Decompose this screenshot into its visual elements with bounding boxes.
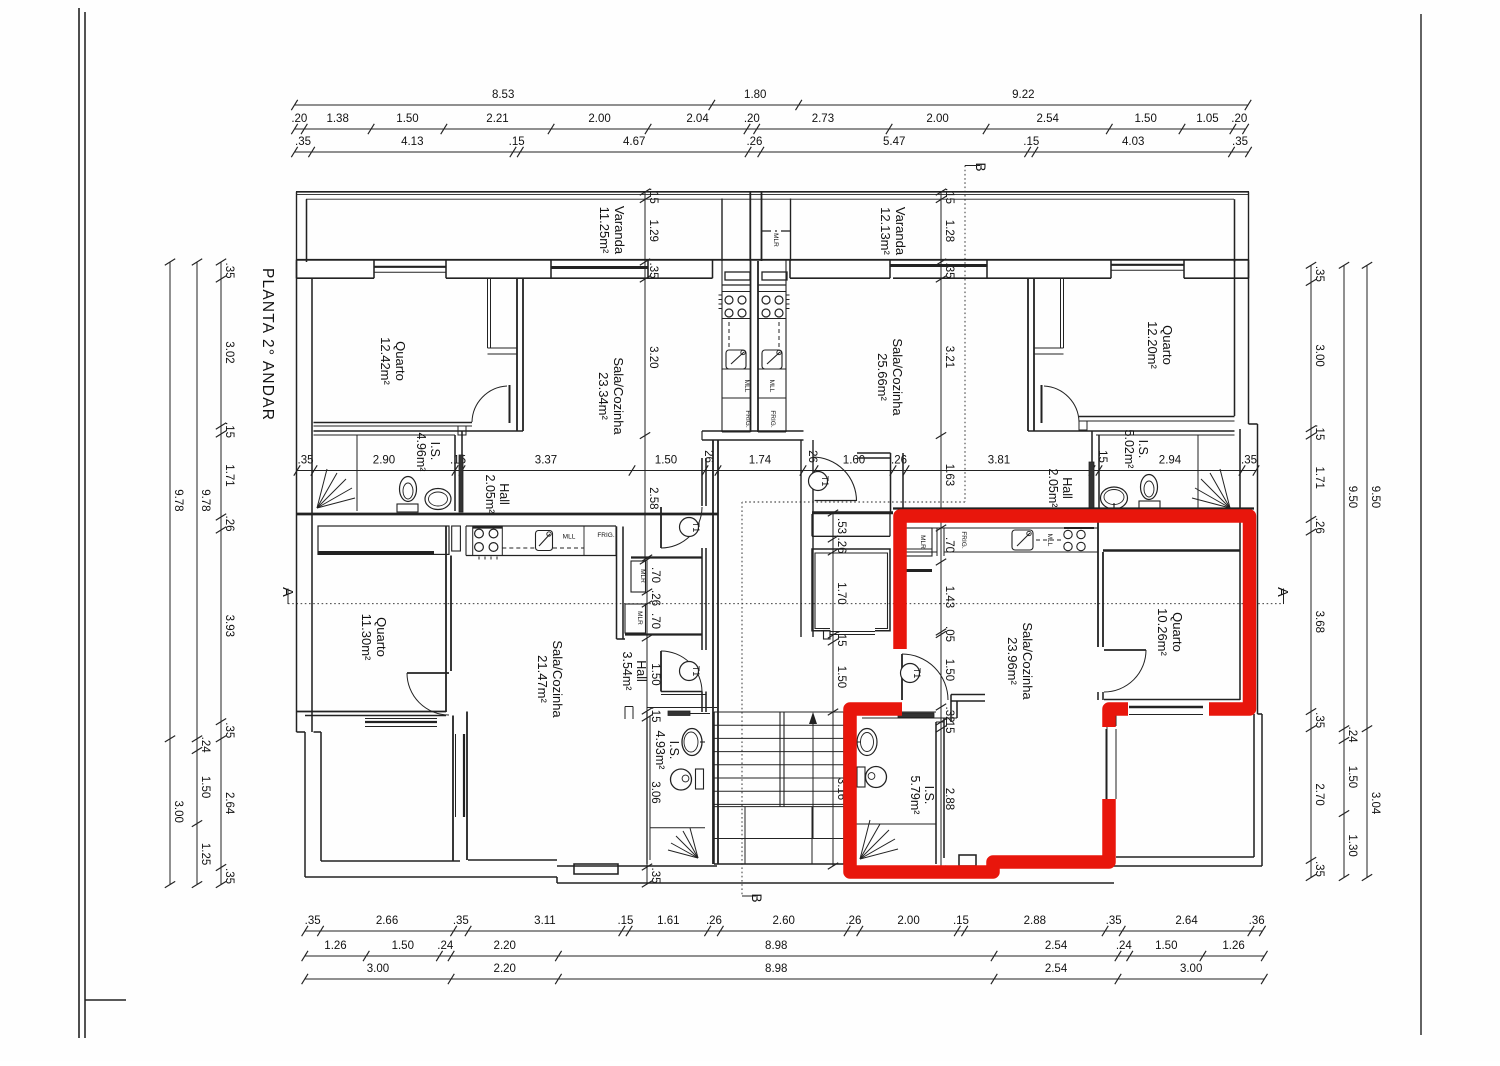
svg-text:.26: .26: [746, 136, 762, 148]
svg-text:1.26: 1.26: [1222, 940, 1244, 952]
svg-text:5.79m²: 5.79m²: [908, 776, 922, 815]
svg-text:.35: .35: [1313, 266, 1325, 282]
svg-text:3.04: 3.04: [1369, 792, 1381, 815]
svg-text:Sala/Cozinha: Sala/Cozinha: [1020, 622, 1035, 700]
svg-text:1.28: 1.28: [943, 220, 955, 242]
svg-text:.20: .20: [1231, 113, 1247, 125]
svg-text:3.81: 3.81: [988, 455, 1010, 467]
svg-text:12.20m²: 12.20m²: [1145, 321, 1160, 369]
svg-text:3.37: 3.37: [535, 455, 557, 467]
svg-text:2.21: 2.21: [486, 113, 508, 125]
svg-text:1.50: 1.50: [1346, 766, 1358, 788]
svg-text:B: B: [973, 162, 988, 171]
svg-text:26: 26: [806, 450, 818, 463]
svg-text:2.54: 2.54: [1045, 940, 1068, 952]
svg-text:Sala/Cozinha: Sala/Cozinha: [890, 338, 905, 416]
svg-text:.20: .20: [291, 113, 307, 125]
svg-text:FRIG.: FRIG.: [597, 532, 615, 539]
svg-text:2.00: 2.00: [926, 113, 948, 125]
svg-text:1.60: 1.60: [843, 455, 865, 467]
svg-text:1.26: 1.26: [324, 940, 346, 952]
svg-text:5.02m²: 5.02m²: [1122, 430, 1136, 469]
svg-text:23.34m²: 23.34m²: [596, 372, 611, 420]
svg-text:.26: .26: [1313, 518, 1325, 534]
svg-text:.15: .15: [943, 718, 955, 734]
svg-text:2.70: 2.70: [1313, 783, 1325, 805]
svg-text:1.50: 1.50: [1155, 940, 1177, 952]
svg-text:.15: .15: [943, 188, 955, 204]
svg-text:.26: .26: [835, 538, 847, 554]
svg-text:.35: .35: [1313, 861, 1325, 877]
svg-text:4.67: 4.67: [623, 136, 645, 148]
svg-text:4.93m²: 4.93m²: [653, 731, 667, 770]
svg-text:8.98: 8.98: [765, 940, 787, 952]
svg-text:1.74: 1.74: [749, 455, 772, 467]
svg-text:.70: .70: [649, 613, 661, 629]
svg-text:12.13m²: 12.13m²: [878, 207, 893, 255]
svg-text:8.98: 8.98: [765, 963, 787, 975]
svg-text:MLR: MLR: [919, 535, 926, 549]
svg-text:10.26m²: 10.26m²: [1155, 608, 1170, 656]
svg-text:.15: .15: [450, 455, 466, 467]
svg-text:.70: .70: [943, 537, 955, 553]
svg-text:1.38: 1.38: [326, 113, 348, 125]
svg-text:I.S.: I.S.: [1136, 440, 1150, 459]
svg-text:2.88: 2.88: [1024, 915, 1046, 927]
svg-text:1.29: 1.29: [647, 220, 659, 242]
svg-text:.35: .35: [223, 722, 235, 738]
svg-text:11.25m²: 11.25m²: [597, 207, 612, 254]
svg-text:FRIG.: FRIG.: [744, 410, 751, 428]
svg-text:2.00: 2.00: [588, 113, 610, 125]
svg-text:Quarto: Quarto: [1160, 325, 1175, 365]
svg-text:.35: .35: [305, 915, 321, 927]
svg-text:Varanda: Varanda: [893, 207, 908, 256]
svg-text:5.47: 5.47: [883, 136, 905, 148]
svg-text:PLANTA 2° ANDAR: PLANTA 2° ANDAR: [259, 268, 276, 421]
svg-text:.15: .15: [617, 915, 633, 927]
svg-text:15: 15: [1096, 450, 1108, 463]
svg-text:Quarto: Quarto: [393, 341, 408, 381]
svg-text:4.03: 4.03: [1122, 136, 1144, 148]
svg-text:1.25: 1.25: [199, 843, 211, 865]
svg-text:25.66m²: 25.66m²: [875, 353, 890, 401]
svg-text:2.20: 2.20: [494, 963, 516, 975]
svg-text:.35: .35: [223, 263, 235, 279]
svg-text:3.02: 3.02: [223, 341, 235, 363]
svg-text:2.54: 2.54: [1037, 113, 1060, 125]
svg-text:.24: .24: [437, 940, 454, 952]
svg-text:.15: .15: [223, 422, 235, 438]
svg-text:4.13: 4.13: [401, 136, 423, 148]
svg-text:.24: .24: [1346, 727, 1358, 744]
svg-text:1.50: 1.50: [649, 663, 661, 685]
svg-text:.15: .15: [1023, 136, 1039, 148]
svg-text:.26: .26: [223, 516, 235, 532]
svg-text:2.90: 2.90: [373, 455, 395, 467]
svg-text:T1: T1: [691, 522, 701, 533]
svg-text:1.63: 1.63: [943, 464, 955, 486]
svg-text:2.88: 2.88: [943, 788, 955, 810]
svg-text:FRIG.: FRIG.: [769, 410, 776, 428]
svg-text:2.04: 2.04: [686, 113, 709, 125]
svg-text:1.50: 1.50: [199, 776, 211, 798]
svg-text:3.54m²: 3.54m²: [620, 652, 634, 691]
svg-text:.35: .35: [223, 868, 235, 884]
svg-text:I.S.: I.S.: [922, 786, 936, 805]
svg-text:A: A: [279, 587, 295, 597]
svg-text:MLL: MLL: [768, 380, 775, 393]
svg-text:3.00: 3.00: [172, 801, 184, 823]
svg-text:1.30: 1.30: [1346, 834, 1358, 856]
svg-text:2.58: 2.58: [647, 487, 659, 509]
svg-text:1.05: 1.05: [1196, 113, 1218, 125]
svg-text:11.30m²: 11.30m²: [359, 614, 374, 661]
svg-text:.24: .24: [1116, 940, 1133, 952]
svg-text:.53: .53: [835, 518, 847, 534]
svg-text:.15: .15: [647, 188, 659, 204]
svg-text:3.00: 3.00: [1313, 344, 1325, 366]
svg-text:.20: .20: [744, 113, 760, 125]
svg-text:.15: .15: [1313, 424, 1325, 440]
svg-text:3.93: 3.93: [223, 615, 235, 637]
svg-text:1.50: 1.50: [1134, 113, 1156, 125]
svg-text:21.47m²: 21.47m²: [535, 655, 550, 703]
svg-text:1.50: 1.50: [396, 113, 418, 125]
svg-text:.35: .35: [649, 868, 661, 884]
svg-text:.35: .35: [453, 915, 469, 927]
svg-text:1.61: 1.61: [657, 915, 679, 927]
svg-text:.70: .70: [649, 567, 661, 583]
svg-text:1.50: 1.50: [943, 659, 955, 681]
svg-text:FRIG.: FRIG.: [960, 531, 967, 549]
svg-text:.26: .26: [706, 915, 722, 927]
svg-text:2.64: 2.64: [1175, 915, 1198, 927]
svg-text:.35: .35: [295, 136, 311, 148]
svg-text:.35: .35: [1241, 455, 1257, 467]
svg-text:T1: T1: [820, 476, 830, 487]
svg-text:T1: T1: [912, 668, 922, 679]
svg-text:12.42m²: 12.42m²: [378, 337, 393, 385]
svg-text:A: A: [1274, 587, 1290, 597]
svg-text:2.20: 2.20: [494, 940, 516, 952]
svg-text:Sala/Cozinha: Sala/Cozinha: [550, 640, 565, 718]
svg-text:2.66: 2.66: [376, 915, 398, 927]
svg-text:3.20: 3.20: [647, 346, 659, 368]
svg-text:1.50: 1.50: [655, 455, 677, 467]
svg-text:B: B: [749, 893, 764, 902]
svg-text:MLR: MLR: [639, 569, 646, 583]
svg-text:8.53: 8.53: [492, 89, 514, 101]
svg-text:9.78: 9.78: [172, 489, 184, 511]
svg-text:.36: .36: [1249, 915, 1265, 927]
svg-text:1.80: 1.80: [744, 89, 766, 101]
svg-text:3.11: 3.11: [534, 915, 556, 927]
svg-text:9.78: 9.78: [199, 489, 211, 511]
svg-text:2.73: 2.73: [812, 113, 834, 125]
svg-text:3.21: 3.21: [943, 346, 955, 368]
svg-text:.24: .24: [199, 737, 211, 754]
svg-text:1.71: 1.71: [1313, 467, 1325, 489]
svg-text:3.68: 3.68: [1313, 611, 1325, 633]
svg-text:2.54: 2.54: [1045, 963, 1068, 975]
svg-text:.35: .35: [1313, 712, 1325, 728]
svg-text:2.05m²: 2.05m²: [1046, 469, 1060, 508]
svg-text:.05: .05: [943, 626, 955, 642]
svg-text:Quarto: Quarto: [374, 617, 389, 657]
svg-text:.15: .15: [649, 707, 661, 723]
svg-text:9.22: 9.22: [1012, 89, 1034, 101]
svg-text:MLR: MLR: [636, 611, 643, 625]
svg-text:.35: .35: [1106, 915, 1122, 927]
svg-text:.26: .26: [891, 455, 907, 467]
svg-text:Hall: Hall: [1060, 477, 1074, 499]
svg-text:9.50: 9.50: [1346, 486, 1358, 508]
svg-text:3.06: 3.06: [649, 781, 661, 803]
svg-text:2.05m²: 2.05m²: [483, 475, 497, 514]
svg-text:1.50: 1.50: [392, 940, 414, 952]
svg-text:.35: .35: [647, 263, 659, 279]
svg-text:3.00: 3.00: [367, 963, 389, 975]
svg-text:Hall: Hall: [497, 483, 511, 505]
svg-text:1.43: 1.43: [943, 586, 955, 608]
svg-text:2.64: 2.64: [223, 792, 235, 815]
svg-text:MLL: MLL: [743, 380, 750, 393]
svg-text:.35: .35: [1232, 136, 1248, 148]
svg-text:T1: T1: [691, 666, 701, 677]
svg-text:Varanda: Varanda: [612, 206, 627, 255]
svg-text:9.50: 9.50: [1369, 486, 1381, 508]
svg-text:.15: .15: [953, 915, 969, 927]
svg-text:4.96m²: 4.96m²: [414, 433, 428, 472]
svg-text:1.50: 1.50: [835, 666, 847, 688]
svg-text:Quarto: Quarto: [1170, 612, 1185, 652]
svg-text:1.70: 1.70: [835, 582, 847, 604]
svg-text:I.S.: I.S.: [428, 442, 442, 461]
svg-text:2.00: 2.00: [897, 915, 919, 927]
svg-text:.15: .15: [509, 136, 525, 148]
svg-text:1.71: 1.71: [223, 464, 235, 486]
svg-text:MLR: MLR: [772, 233, 779, 247]
svg-text:I.S.: I.S.: [667, 741, 681, 760]
svg-text:.15: .15: [835, 631, 847, 647]
svg-text:23.96m²: 23.96m²: [1005, 637, 1020, 685]
svg-text:2.60: 2.60: [773, 915, 795, 927]
svg-text:MLL: MLL: [563, 534, 576, 541]
svg-text:3.00: 3.00: [1180, 963, 1202, 975]
svg-text:.26: .26: [845, 915, 861, 927]
svg-text:2.94: 2.94: [1159, 455, 1182, 467]
svg-text:.35: .35: [298, 455, 314, 467]
svg-text:Hall: Hall: [634, 660, 648, 682]
svg-text:Sala/Cozinha: Sala/Cozinha: [611, 357, 626, 435]
